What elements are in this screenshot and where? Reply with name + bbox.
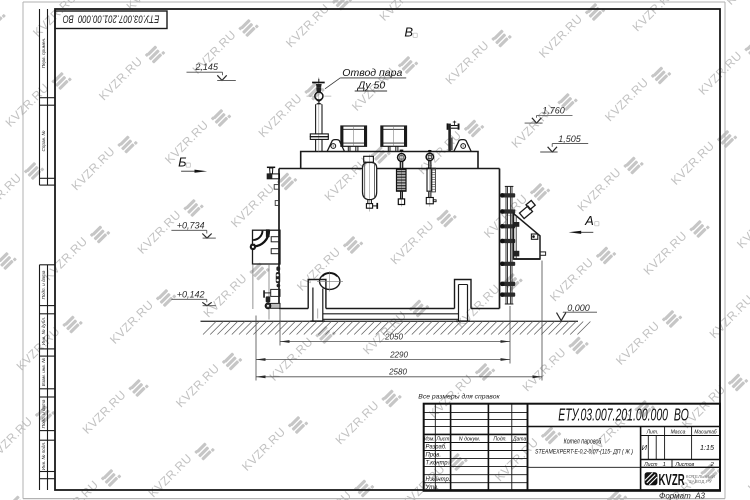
svg-text:ЕТУ.03.007.201.00.000 ВО: ЕТУ.03.007.201.00.000 ВО: [558, 406, 689, 425]
svg-text:KVZR.RU: KVZR.RU: [69, 144, 118, 193]
svg-text:Котел паровой: Котел паровой: [564, 437, 602, 446]
svg-text:KVZR.RU: KVZR.RU: [547, 255, 596, 304]
svg-text:KVZR.RU: KVZR.RU: [294, 245, 343, 294]
svg-text:Дата: Дата: [512, 436, 526, 442]
svg-text:KVZR.RU: KVZR.RU: [173, 361, 222, 410]
svg-text:Инв. № дубл.: Инв. № дубл.: [41, 317, 46, 345]
svg-text:KVZR.RU: KVZR.RU: [723, 0, 750, 8]
svg-text:KVZR.RU: KVZR.RU: [377, 0, 426, 24]
svg-text:KVZR.RU: KVZR.RU: [734, 202, 750, 251]
svg-text:1,760: 1,760: [542, 105, 565, 115]
svg-text:STEAMEXPERT-Е-0,2-0,07-(115- Д: STEAMEXPERT-Е-0,2-0,07-(115- ДП ( Ж ): [535, 449, 633, 456]
svg-text:KVZR.RU: KVZR.RU: [146, 451, 195, 500]
svg-text:KVZR.RU: KVZR.RU: [630, 0, 679, 34]
svg-text:2,145: 2,145: [194, 62, 219, 72]
svg-text:ЗАВОД.РУ: ЗАВОД.РУ: [689, 479, 712, 484]
svg-text:KVZR.RU: KVZR.RU: [745, 446, 750, 495]
svg-text:Взам. инв. №: Взам. инв. №: [41, 358, 46, 386]
svg-text:Разраб.: Разраб.: [426, 445, 447, 451]
svg-text:Подп. и дата: Подп. и дата: [41, 399, 46, 428]
svg-text:KVZR.RU: KVZR.RU: [602, 75, 651, 124]
svg-text:Инв. № подл.: Инв. № подл.: [41, 442, 46, 471]
svg-text:KVZR.RU: KVZR.RU: [228, 181, 277, 230]
svg-text:KVZR.RU: KVZR.RU: [135, 208, 184, 257]
svg-text:Формат А3: Формат А3: [659, 491, 706, 500]
svg-text:2290: 2290: [389, 350, 408, 359]
svg-text:KVZR.RU: KVZR.RU: [536, 12, 585, 61]
svg-text:KVZR.RU: KVZR.RU: [41, 234, 90, 283]
svg-text:КОТЕЛЬНЫЙ: КОТЕЛЬНЫЙ: [686, 474, 715, 479]
svg-text:KVZR.RU: KVZR.RU: [520, 345, 569, 394]
svg-text:Утв.: Утв.: [425, 485, 439, 491]
svg-text:И: И: [642, 443, 648, 452]
svg-text:KVZR.RU: KVZR.RU: [162, 118, 211, 167]
svg-text:В: В: [404, 24, 413, 39]
svg-text:2050: 2050: [384, 332, 403, 341]
svg-text:ЕТУ.03.007.201.00.000 ВО: ЕТУ.03.007.201.00.000 ВО: [62, 13, 159, 26]
svg-text:+0,734: +0,734: [177, 221, 205, 231]
svg-text:Справ. №: Справ. №: [41, 131, 46, 152]
svg-text:KVZR.RU: KVZR.RU: [96, 54, 145, 103]
svg-text:KVZR.RU: KVZR.RU: [80, 388, 129, 437]
svg-text:Пров.: Пров.: [426, 453, 441, 459]
svg-text:KVZR.RU: KVZR.RU: [239, 425, 288, 474]
svg-text:Подп.: Подп.: [493, 436, 506, 442]
svg-text:Б: Б: [178, 155, 187, 170]
svg-text:1:15: 1:15: [700, 443, 715, 452]
svg-text:KVZR.RU: KVZR.RU: [641, 229, 690, 278]
svg-text:KVZR.RU: KVZR.RU: [256, 91, 305, 140]
svg-text:Перв. примен.: Перв. примен.: [41, 38, 46, 69]
svg-text:KVZR.RU: KVZR.RU: [388, 218, 437, 267]
svg-text:KVZR.RU: KVZR.RU: [0, 414, 35, 463]
svg-text:KVZR.RU: KVZR.RU: [107, 298, 156, 347]
svg-text:Ду 50: Ду 50: [357, 80, 386, 92]
svg-text:+0,142: +0,142: [177, 290, 205, 300]
svg-text:А: А: [584, 213, 594, 228]
svg-text:Т.контр.: Т.контр.: [426, 461, 450, 467]
svg-text:Н.контр.: Н.контр.: [426, 477, 451, 483]
svg-text:KVZR.RU: KVZR.RU: [415, 128, 464, 177]
svg-text:Подп. и дата: Подп. и дата: [41, 270, 46, 299]
svg-text:KVZR.RU: KVZR.RU: [443, 38, 492, 87]
svg-text:KVZR.RU: KVZR.RU: [52, 478, 101, 500]
svg-text:Все размеры для справок: Все размеры для справок: [418, 392, 500, 400]
svg-text:KVZR: KVZR: [659, 470, 686, 488]
svg-text:KVZR.RU: KVZR.RU: [668, 139, 717, 188]
svg-text:KVZR.RU: KVZR.RU: [0, 171, 24, 220]
svg-text:KVZR.RU: KVZR.RU: [707, 292, 750, 341]
svg-text:Масса: Масса: [671, 429, 686, 435]
svg-text:KVZR.RU: KVZR.RU: [201, 271, 250, 320]
svg-text:KVZR.RU: KVZR.RU: [613, 319, 662, 368]
svg-text:N докум.: N докум.: [459, 436, 480, 442]
svg-text:2580: 2580: [388, 368, 407, 377]
svg-text:Масштаб: Масштаб: [694, 429, 717, 435]
svg-text:KVZR.RU: KVZR.RU: [333, 398, 382, 447]
svg-text:1,505: 1,505: [558, 134, 582, 144]
svg-text:Лист: Лист: [435, 436, 449, 442]
svg-text:0,000: 0,000: [567, 303, 590, 313]
svg-text:Отвод пара: Отвод пара: [342, 67, 402, 79]
svg-text:Изм.: Изм.: [424, 436, 435, 442]
svg-text:KVZR.RU: KVZR.RU: [575, 165, 624, 214]
svg-text:Лит.: Лит.: [646, 429, 659, 435]
